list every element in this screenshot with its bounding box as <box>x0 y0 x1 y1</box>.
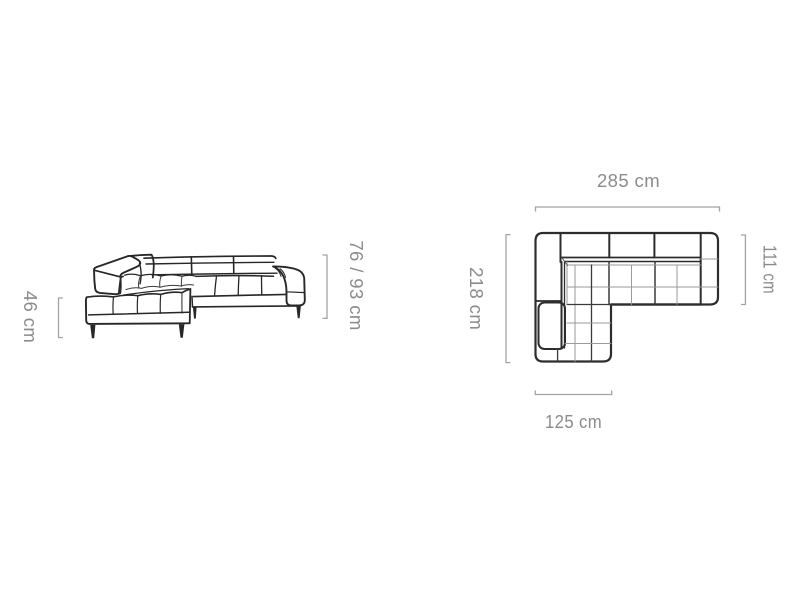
svg-text:285 cm: 285 cm <box>597 170 660 191</box>
svg-text:111 cm: 111 cm <box>760 245 781 294</box>
svg-text:218 cm: 218 cm <box>466 267 487 330</box>
svg-text:76 / 93 cm: 76 / 93 cm <box>346 240 367 330</box>
svg-text:46 cm: 46 cm <box>20 291 41 343</box>
svg-text:125 cm: 125 cm <box>545 411 602 432</box>
